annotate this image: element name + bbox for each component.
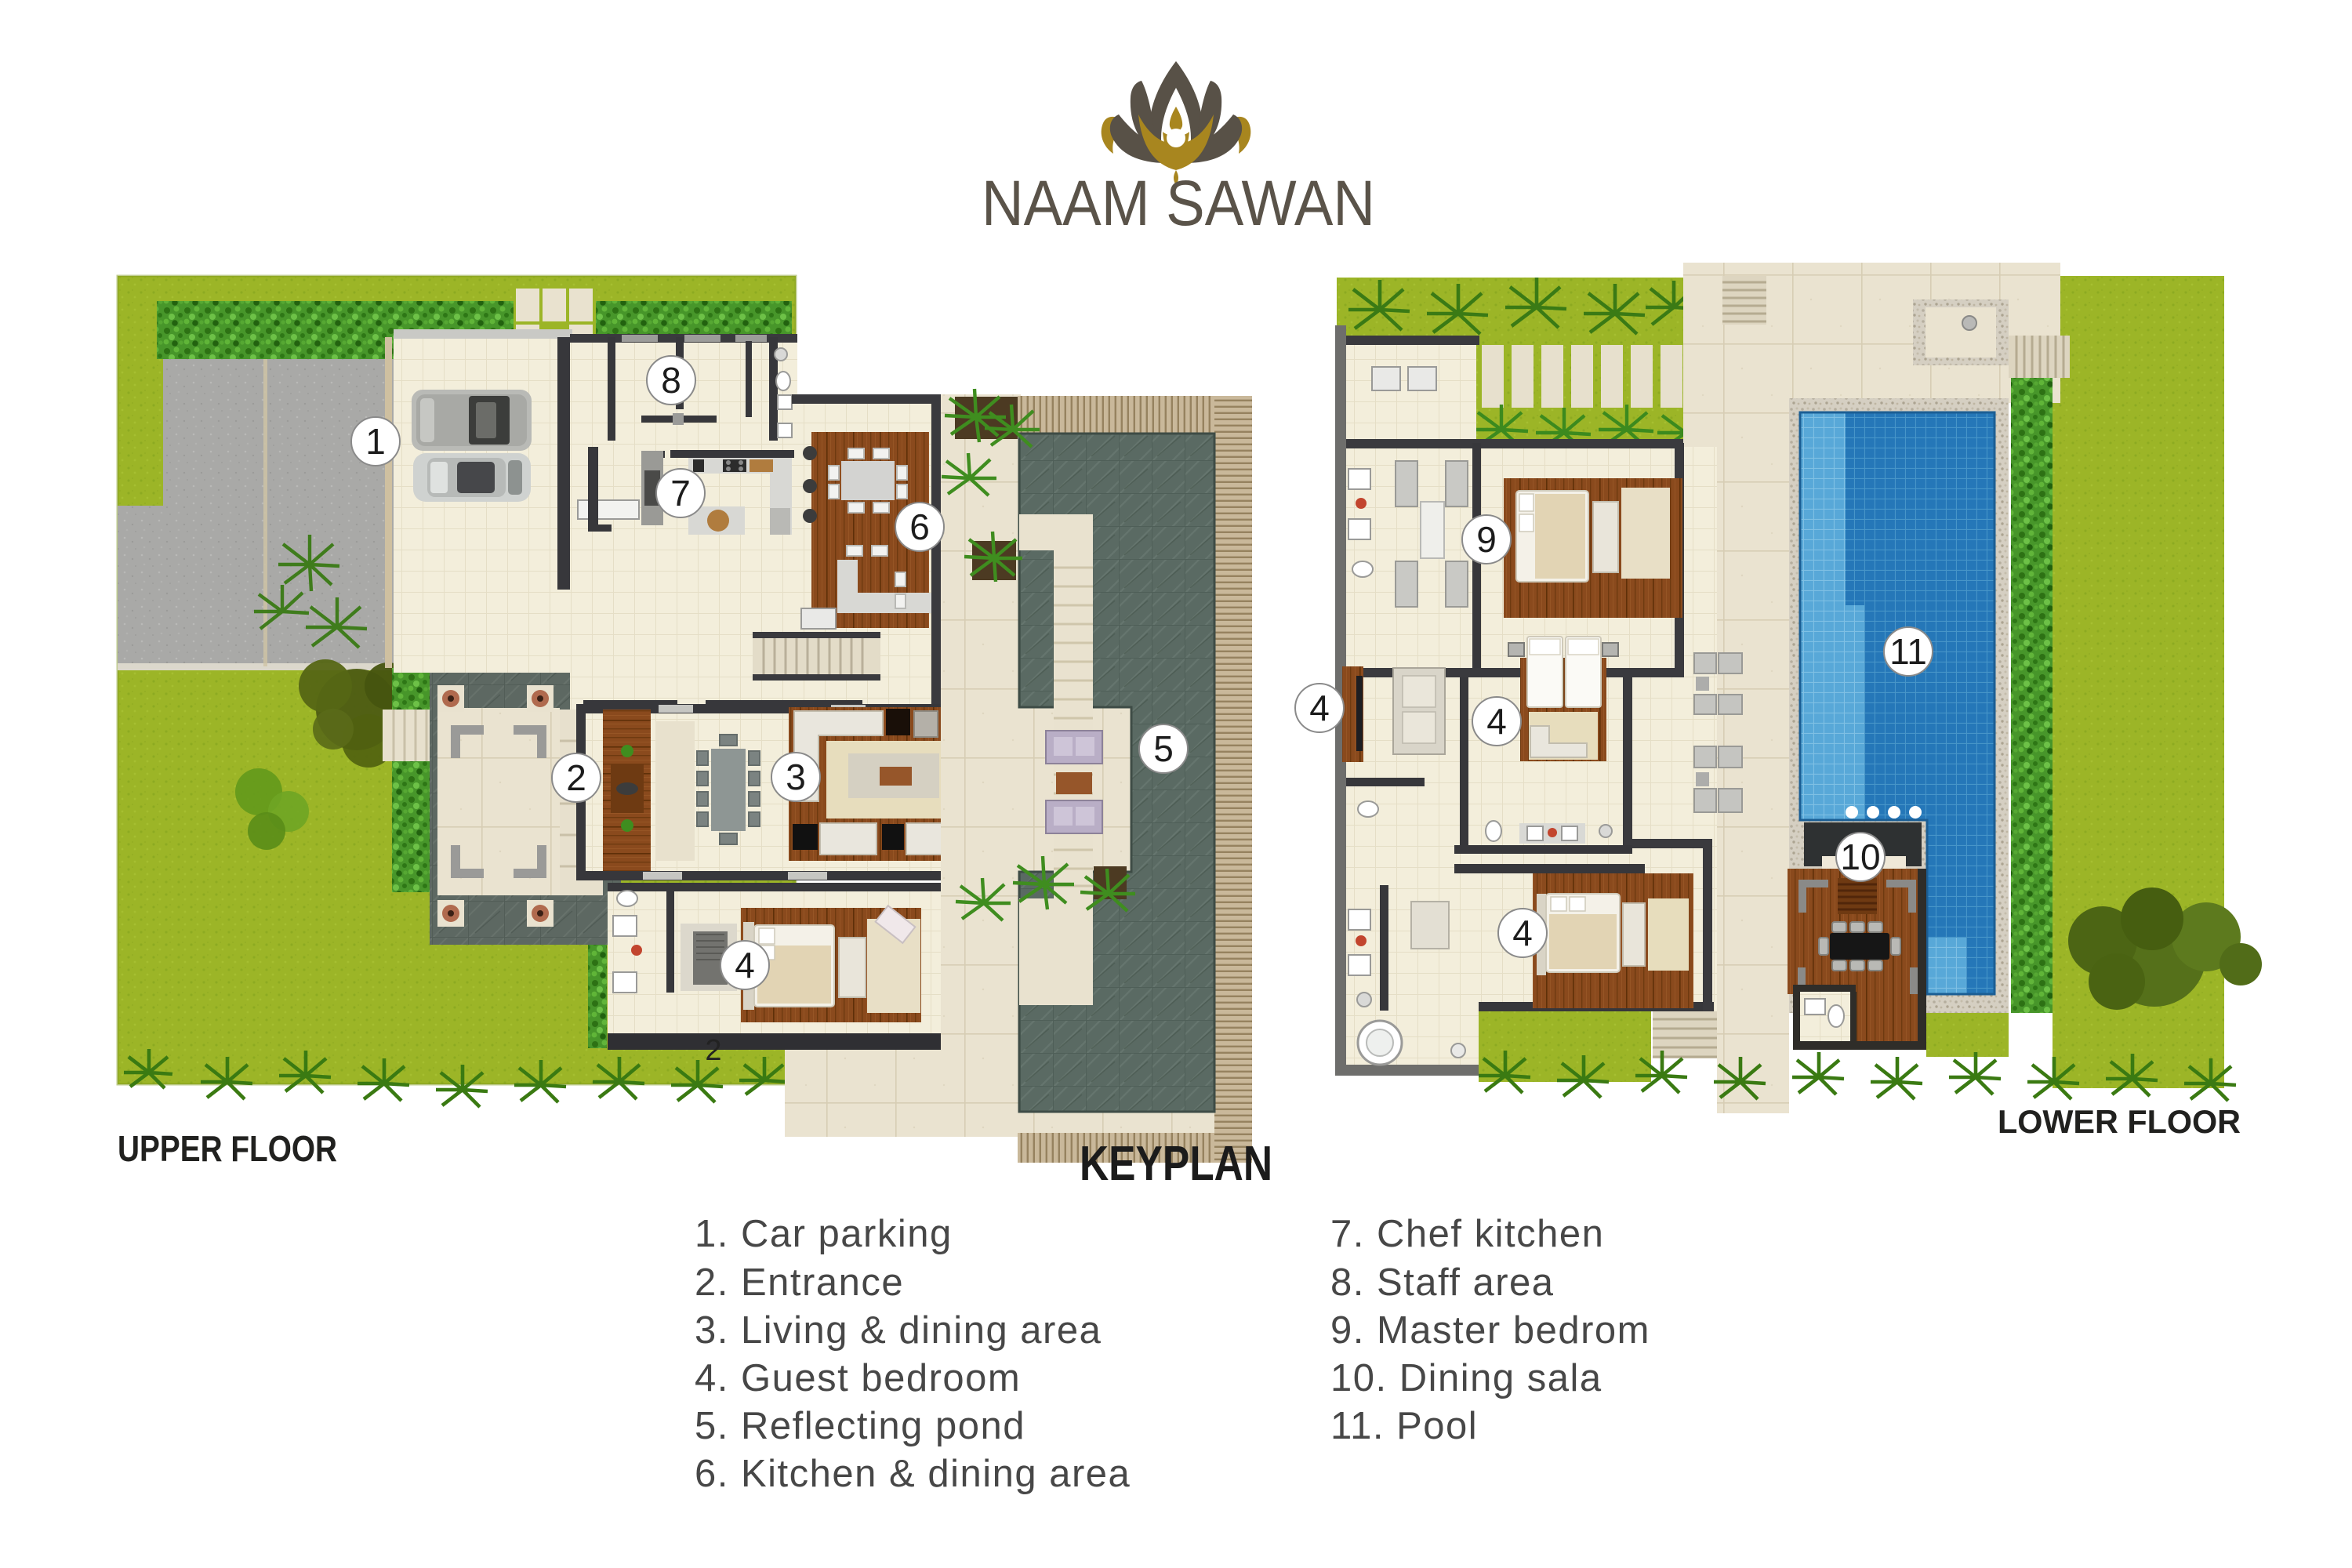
svg-text:2: 2 xyxy=(566,757,586,798)
svg-text:6. Kitchen & dining area: 6. Kitchen & dining area xyxy=(695,1453,1131,1495)
svg-text:10. Dining sala: 10. Dining sala xyxy=(1330,1357,1602,1399)
svg-text:11. Pool: 11. Pool xyxy=(1330,1405,1478,1447)
svg-text:4: 4 xyxy=(1512,913,1533,953)
svg-text:7. Chef kitchen: 7. Chef kitchen xyxy=(1330,1213,1604,1255)
svg-text:7: 7 xyxy=(670,473,691,514)
svg-text:9: 9 xyxy=(1476,519,1497,560)
svg-text:10: 10 xyxy=(1840,837,1880,877)
svg-text:5. Reflecting pond: 5. Reflecting pond xyxy=(695,1405,1025,1447)
svg-text:KEYPLAN: KEYPLAN xyxy=(1080,1137,1272,1191)
svg-text:5: 5 xyxy=(1153,728,1174,769)
svg-text:2. Entrance: 2. Entrance xyxy=(695,1261,904,1304)
svg-text:LOWER FLOOR: LOWER FLOOR xyxy=(1998,1103,2241,1140)
svg-text:4: 4 xyxy=(1309,688,1330,728)
svg-text:2: 2 xyxy=(705,1034,721,1067)
svg-text:NAAM SAWAN: NAAM SAWAN xyxy=(982,168,1375,239)
svg-text:8: 8 xyxy=(661,360,681,401)
svg-text:3: 3 xyxy=(786,757,806,797)
svg-text:4. Guest bedroom: 4. Guest bedroom xyxy=(695,1357,1021,1399)
svg-text:4: 4 xyxy=(735,945,755,985)
svg-text:3. Living & dining area: 3. Living & dining area xyxy=(695,1309,1102,1352)
svg-text:4: 4 xyxy=(1486,701,1507,742)
svg-text:6: 6 xyxy=(909,506,930,547)
svg-text:1: 1 xyxy=(365,421,386,462)
svg-text:11: 11 xyxy=(1889,631,1927,672)
svg-text:UPPER FLOOR: UPPER FLOOR xyxy=(118,1128,337,1169)
svg-text:1. Car parking: 1. Car parking xyxy=(695,1213,953,1255)
svg-text:8. Staff area: 8. Staff area xyxy=(1330,1261,1555,1304)
svg-text:9. Master bedrom: 9. Master bedrom xyxy=(1330,1309,1650,1352)
